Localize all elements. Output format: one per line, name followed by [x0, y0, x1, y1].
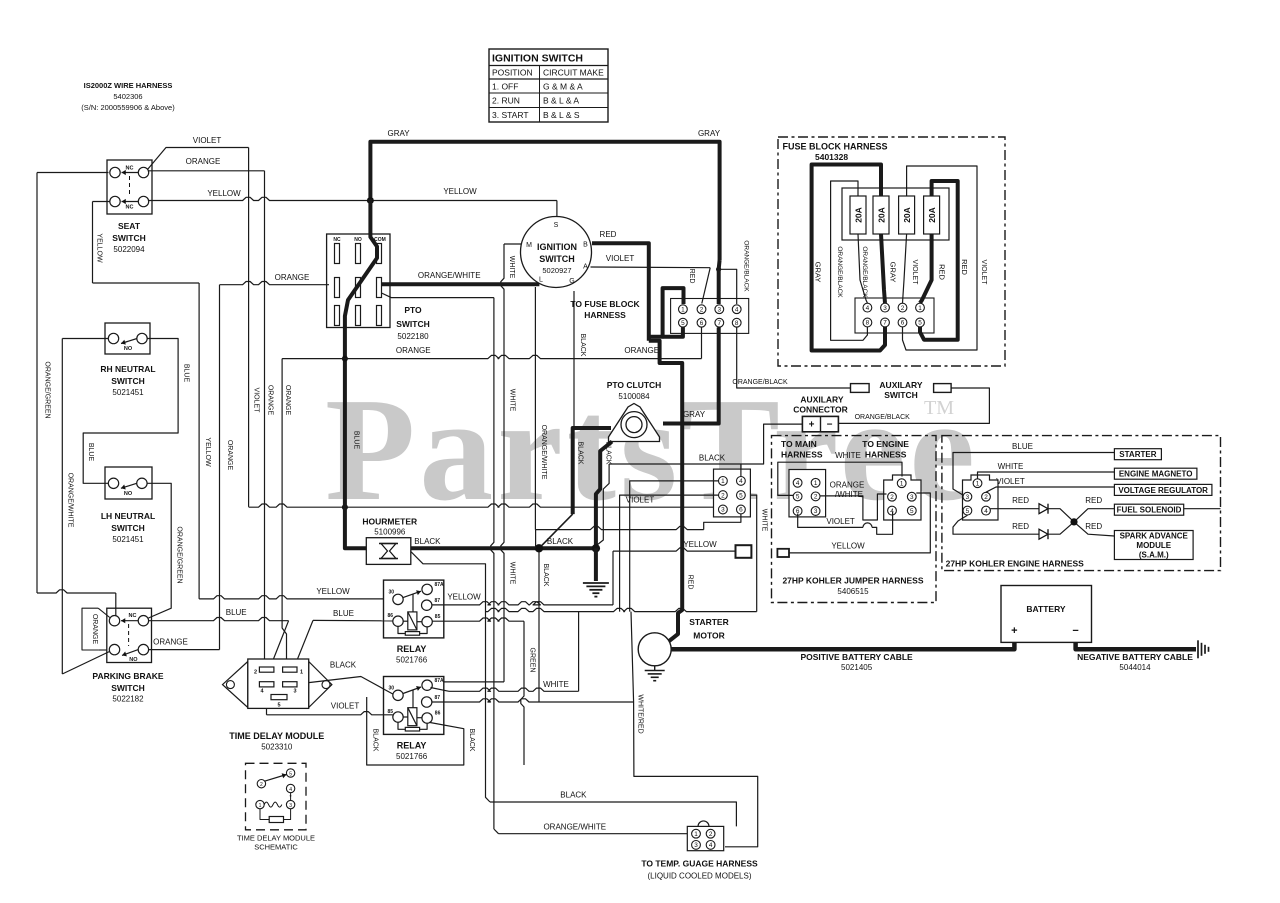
svg-text:30: 30 [389, 590, 395, 596]
svg-text:ORANGE/WHITE: ORANGE/WHITE [418, 271, 481, 280]
svg-text:BLACK: BLACK [330, 661, 357, 670]
svg-text:5100084: 5100084 [618, 392, 650, 401]
svg-text:3: 3 [289, 803, 292, 809]
svg-text:NC: NC [126, 166, 134, 172]
svg-text:M: M [526, 242, 532, 249]
svg-text:YELLOW: YELLOW [831, 542, 865, 551]
svg-text:BLUE: BLUE [87, 443, 94, 462]
svg-text:1: 1 [721, 478, 725, 485]
svg-text:S: S [554, 222, 559, 229]
svg-text:POSITION: POSITION [492, 68, 533, 78]
svg-text:87: 87 [435, 695, 441, 701]
svg-text:RED: RED [688, 269, 695, 284]
svg-text:5021766: 5021766 [396, 752, 428, 761]
svg-text:ENGINE MAGNETO: ENGINE MAGNETO [1119, 470, 1193, 479]
svg-text:TO FUSE BLOCK: TO FUSE BLOCK [570, 299, 640, 309]
svg-text:2: 2 [901, 305, 905, 312]
svg-text:RELAY: RELAY [397, 644, 427, 654]
svg-text:7: 7 [883, 320, 887, 327]
svg-text:4: 4 [289, 787, 292, 793]
svg-text:85: 85 [435, 614, 441, 620]
svg-text:ORANGE: ORANGE [284, 385, 291, 416]
svg-text:ORANGE: ORANGE [275, 273, 310, 282]
svg-text:SWITCH: SWITCH [112, 233, 146, 243]
svg-text:ORANGE: ORANGE [624, 346, 659, 355]
svg-text:5021766: 5021766 [396, 656, 428, 665]
svg-text:BATTERY: BATTERY [1026, 604, 1066, 614]
svg-text:SEAT: SEAT [118, 221, 141, 231]
svg-text:2: 2 [814, 494, 818, 501]
svg-text:RED: RED [1085, 522, 1102, 531]
svg-text:2. RUN: 2. RUN [492, 96, 520, 106]
svg-text:WHITE/RED: WHITE/RED [637, 694, 644, 733]
svg-text:ORANGE/GREEN: ORANGE/GREEN [44, 361, 51, 418]
svg-text:RELAY: RELAY [397, 741, 427, 751]
svg-text:3: 3 [293, 689, 296, 695]
svg-text:FUSE BLOCK HARNESS: FUSE BLOCK HARNESS [783, 142, 888, 152]
svg-text:5: 5 [277, 703, 280, 709]
svg-text:NO: NO [124, 346, 133, 352]
svg-text:3: 3 [910, 494, 914, 501]
svg-text:HOURMETER: HOURMETER [362, 517, 417, 527]
svg-text:6: 6 [901, 320, 905, 327]
svg-text:85: 85 [388, 709, 394, 715]
svg-text:TO MAIN: TO MAIN [781, 439, 817, 449]
svg-text:NC: NC [126, 205, 134, 211]
svg-text:SWITCH: SWITCH [111, 683, 145, 693]
svg-text:ORANGE/WHITE: ORANGE/WHITE [67, 473, 74, 528]
svg-text:27HP KOHLER JUMPER HARNESS: 27HP KOHLER JUMPER HARNESS [782, 576, 923, 586]
svg-text:TIME DELAY MODULE: TIME DELAY MODULE [237, 834, 315, 843]
svg-text:BLACK: BLACK [560, 791, 587, 800]
svg-text:RED: RED [938, 264, 947, 280]
svg-text:3: 3 [814, 508, 818, 515]
svg-text:TM: TM [924, 397, 954, 419]
svg-text:YELLOW: YELLOW [447, 593, 481, 602]
svg-text:20A: 20A [927, 207, 937, 223]
svg-text:HARNESS: HARNESS [781, 450, 823, 460]
svg-text:MODULE: MODULE [1136, 541, 1171, 550]
svg-text:4: 4 [796, 480, 800, 487]
svg-text:B: B [583, 242, 588, 249]
svg-text:SWITCH: SWITCH [539, 254, 575, 264]
svg-text:CIRCUIT MAKE: CIRCUIT MAKE [543, 68, 604, 78]
svg-text:RED: RED [600, 230, 617, 239]
svg-text:5402306: 5402306 [113, 92, 142, 101]
svg-text:YELLOW: YELLOW [207, 189, 241, 198]
svg-text:7: 7 [718, 320, 722, 327]
svg-text:5100996: 5100996 [374, 528, 406, 537]
svg-text:1: 1 [918, 305, 922, 312]
svg-text:RED: RED [960, 259, 969, 275]
svg-text:NO: NO [354, 237, 362, 243]
svg-text:3: 3 [883, 305, 887, 312]
svg-text:87A: 87A [435, 678, 445, 684]
svg-text:5021451: 5021451 [112, 388, 144, 397]
svg-text:SCHEMATIC: SCHEMATIC [254, 843, 298, 852]
svg-text:VIOLET: VIOLET [996, 477, 1025, 486]
svg-text:20A: 20A [877, 207, 887, 223]
svg-text:YELLOW: YELLOW [683, 540, 717, 549]
svg-text:(S.A.M.): (S.A.M.) [1139, 551, 1169, 560]
svg-text:B & L & A: B & L & A [543, 96, 579, 106]
svg-text:3: 3 [721, 507, 725, 514]
svg-text:POSITIVE BATTERY CABLE: POSITIVE BATTERY CABLE [800, 652, 913, 662]
svg-text:STARTER: STARTER [689, 617, 729, 627]
svg-text:4: 4 [735, 306, 739, 313]
svg-text:5: 5 [966, 508, 970, 515]
svg-text:4: 4 [709, 842, 713, 849]
svg-text:1: 1 [300, 670, 303, 676]
svg-text:NEGATIVE BATTERY CABLE: NEGATIVE BATTERY CABLE [1077, 652, 1193, 662]
svg-text:4: 4 [739, 478, 743, 485]
svg-text:VIOLET: VIOLET [911, 260, 918, 286]
svg-text:1: 1 [900, 480, 904, 487]
svg-text:ORANGE/GREEN: ORANGE/GREEN [176, 526, 183, 583]
svg-text:5023310: 5023310 [261, 743, 293, 752]
svg-text:BLACK: BLACK [414, 537, 441, 546]
svg-text:2: 2 [260, 782, 263, 788]
svg-text:NC: NC [129, 613, 137, 619]
svg-text:BLUE: BLUE [183, 364, 190, 383]
svg-text:NC: NC [333, 237, 341, 243]
svg-text:FUEL SOLENOID: FUEL SOLENOID [1117, 506, 1182, 515]
svg-text:+: + [809, 420, 815, 431]
svg-text:GREEN: GREEN [529, 648, 536, 673]
svg-text:2: 2 [721, 492, 725, 499]
svg-text:3. START: 3. START [492, 110, 529, 120]
svg-text:1: 1 [976, 480, 980, 487]
svg-text:WHITE: WHITE [835, 451, 861, 460]
svg-text:GRAY: GRAY [683, 410, 706, 419]
svg-text:BLUE: BLUE [1012, 442, 1033, 451]
svg-text:WHITE: WHITE [509, 389, 516, 412]
svg-text:20A: 20A [902, 207, 912, 223]
svg-text:27HP KOHLER ENGINE HARNESS: 27HP KOHLER ENGINE HARNESS [946, 559, 1085, 569]
svg-text:RH NEUTRAL: RH NEUTRAL [100, 364, 155, 374]
svg-text:SWITCH: SWITCH [111, 376, 145, 386]
svg-text:PTO CLUTCH: PTO CLUTCH [607, 380, 662, 390]
svg-text:5: 5 [910, 508, 914, 515]
svg-text:ORANGE/WHITE: ORANGE/WHITE [543, 823, 606, 832]
svg-text:VIOLET: VIOLET [331, 702, 360, 711]
svg-text:TO ENGINE: TO ENGINE [862, 439, 909, 449]
svg-text:SWITCH: SWITCH [111, 523, 145, 533]
svg-text:ORANGE/BLACK: ORANGE/BLACK [861, 246, 868, 298]
svg-text:RED: RED [1085, 496, 1102, 505]
svg-text:ORANGE: ORANGE [226, 440, 233, 471]
svg-text:1. OFF: 1. OFF [492, 82, 518, 92]
svg-text:IS2000Z WIRE HARNESS: IS2000Z WIRE HARNESS [84, 81, 173, 90]
svg-text:RED: RED [1012, 522, 1029, 531]
svg-text:86: 86 [435, 711, 441, 717]
svg-text:6: 6 [700, 320, 704, 327]
svg-text:ORANGE: ORANGE [267, 385, 274, 416]
svg-text:WHITE: WHITE [998, 462, 1024, 471]
svg-text:ORANGE: ORANGE [830, 481, 865, 490]
svg-text:ORANGE/BLACK: ORANGE/BLACK [855, 414, 911, 421]
svg-text:3: 3 [966, 494, 970, 501]
svg-text:−: − [1072, 625, 1078, 637]
svg-text:−: − [827, 420, 833, 431]
svg-text:BLACK: BLACK [468, 729, 475, 752]
svg-text:L: L [539, 277, 543, 284]
svg-text:BLACK: BLACK [371, 729, 378, 752]
svg-text:WHITE: WHITE [508, 256, 515, 279]
svg-text:5021405: 5021405 [841, 663, 873, 672]
svg-text:5020927: 5020927 [542, 266, 571, 275]
svg-text:5: 5 [739, 492, 743, 499]
svg-text:ORANGE/WHITE: ORANGE/WHITE [540, 425, 547, 480]
svg-text:HARNESS: HARNESS [865, 450, 907, 460]
svg-text:YELLOW: YELLOW [443, 187, 477, 196]
svg-text:5401328: 5401328 [815, 152, 848, 162]
svg-text:4: 4 [984, 508, 988, 515]
svg-text:GRAY: GRAY [698, 129, 721, 138]
svg-text:A: A [583, 264, 588, 271]
svg-text:ORANGE: ORANGE [91, 614, 98, 645]
svg-text:ORANGE/BLACK: ORANGE/BLACK [836, 246, 843, 298]
svg-text:1: 1 [259, 803, 262, 809]
svg-text:BLACK: BLACK [542, 564, 549, 587]
svg-text:AUXILARY: AUXILARY [879, 380, 922, 390]
svg-text:BLACK: BLACK [547, 537, 574, 546]
svg-text:2: 2 [984, 494, 988, 501]
svg-text:3: 3 [694, 842, 698, 849]
svg-text:5: 5 [289, 771, 292, 777]
svg-text:AUXILARY: AUXILARY [800, 395, 843, 405]
svg-text:2: 2 [700, 306, 704, 313]
svg-text:5406515: 5406515 [837, 587, 869, 596]
svg-text:ORANGE/BLACK: ORANGE/BLACK [732, 379, 788, 386]
svg-text:1: 1 [694, 831, 698, 838]
svg-text:VOLTAGE REGULATOR: VOLTAGE REGULATOR [1118, 486, 1208, 495]
svg-text:YELLOW: YELLOW [96, 233, 103, 263]
svg-text:1: 1 [681, 306, 685, 313]
svg-text:NO: NO [124, 491, 133, 497]
svg-text:1: 1 [814, 480, 818, 487]
svg-text:BLUE: BLUE [333, 609, 354, 618]
svg-text:RED: RED [1012, 496, 1029, 505]
svg-text:IGNITION: IGNITION [537, 242, 577, 252]
svg-text:LH NEUTRAL: LH NEUTRAL [101, 511, 155, 521]
svg-text:G: G [569, 278, 574, 285]
svg-text:WHITE: WHITE [543, 680, 569, 689]
svg-text:ORANGE/BLACK: ORANGE/BLACK [743, 240, 750, 292]
svg-text:PARKING BRAKE: PARKING BRAKE [92, 671, 163, 681]
svg-text:ORANGE: ORANGE [396, 346, 431, 355]
svg-text:5022094: 5022094 [113, 245, 145, 254]
svg-text:87: 87 [435, 598, 441, 604]
svg-text:VIOLET: VIOLET [826, 517, 855, 526]
svg-text:GRAY: GRAY [889, 262, 898, 283]
svg-text:2: 2 [890, 494, 894, 501]
svg-text:GRAY: GRAY [388, 129, 411, 138]
svg-text:BLUE: BLUE [226, 608, 247, 617]
svg-text:5044014: 5044014 [1119, 663, 1151, 672]
svg-text:TO TEMP. GUAGE HARNESS: TO TEMP. GUAGE HARNESS [641, 859, 758, 869]
svg-text:BLUE: BLUE [353, 431, 360, 450]
svg-text:GRAY: GRAY [814, 262, 823, 283]
svg-text:YELLOW: YELLOW [316, 587, 350, 596]
svg-text:BLACK: BLACK [577, 442, 584, 465]
svg-text:20A: 20A [854, 207, 864, 223]
svg-text:TIME DELAY MODULE: TIME DELAY MODULE [229, 731, 324, 741]
svg-text:+: + [1011, 625, 1017, 637]
svg-text:SPARK ADVANCE: SPARK ADVANCE [1120, 532, 1189, 541]
svg-text:5: 5 [918, 320, 922, 327]
svg-text:30: 30 [389, 686, 395, 692]
svg-text:3: 3 [718, 306, 722, 313]
svg-text:IGNITION SWITCH: IGNITION SWITCH [492, 53, 583, 65]
svg-text:PTO: PTO [404, 305, 422, 315]
svg-text:4: 4 [866, 305, 870, 312]
svg-text:(S/N: 2000559906 & Above): (S/N: 2000559906 & Above) [81, 103, 175, 112]
svg-text:(LIQUID COOLED MODELS): (LIQUID COOLED MODELS) [647, 872, 751, 881]
svg-text:YELLOW: YELLOW [204, 437, 211, 467]
svg-text:VIOLET: VIOLET [193, 136, 222, 145]
svg-text:NO: NO [129, 657, 138, 663]
svg-text:G & M & A: G & M & A [543, 82, 583, 92]
svg-text:5: 5 [796, 494, 800, 501]
svg-text:ORANGE: ORANGE [153, 638, 188, 647]
svg-text:8: 8 [866, 320, 870, 327]
svg-text:2: 2 [254, 670, 257, 676]
svg-text:ORANGE: ORANGE [186, 157, 221, 166]
svg-text:5022182: 5022182 [112, 695, 144, 704]
svg-text:8: 8 [735, 320, 739, 327]
svg-text:SWITCH: SWITCH [884, 390, 918, 400]
svg-text:HARNESS: HARNESS [584, 310, 626, 320]
svg-text:B & L & S: B & L & S [543, 110, 580, 120]
svg-text:BLACK: BLACK [605, 442, 612, 465]
svg-text:SWITCH: SWITCH [396, 319, 430, 329]
svg-text:VIOLET: VIOLET [606, 254, 635, 263]
svg-text:5022180: 5022180 [397, 332, 429, 341]
svg-text:6: 6 [739, 507, 743, 514]
svg-text:87A: 87A [435, 582, 445, 588]
svg-text:BLACK: BLACK [579, 334, 586, 357]
svg-text:BLACK: BLACK [699, 454, 726, 463]
svg-text:MOTOR: MOTOR [693, 631, 724, 641]
svg-text:2: 2 [709, 831, 713, 838]
svg-text:STARTER: STARTER [1119, 450, 1156, 459]
svg-text:CONNECTOR: CONNECTOR [793, 405, 848, 415]
svg-text:/WHITE: /WHITE [835, 490, 863, 499]
svg-text:5: 5 [681, 320, 685, 327]
svg-text:RED: RED [687, 575, 694, 590]
svg-text:WHITE: WHITE [509, 562, 516, 585]
svg-text:5021451: 5021451 [112, 535, 144, 544]
svg-text:VIOLET: VIOLET [253, 388, 260, 414]
svg-text:86: 86 [388, 613, 394, 619]
svg-text:VIOLET: VIOLET [980, 260, 987, 286]
svg-text:WHITE: WHITE [761, 509, 768, 532]
